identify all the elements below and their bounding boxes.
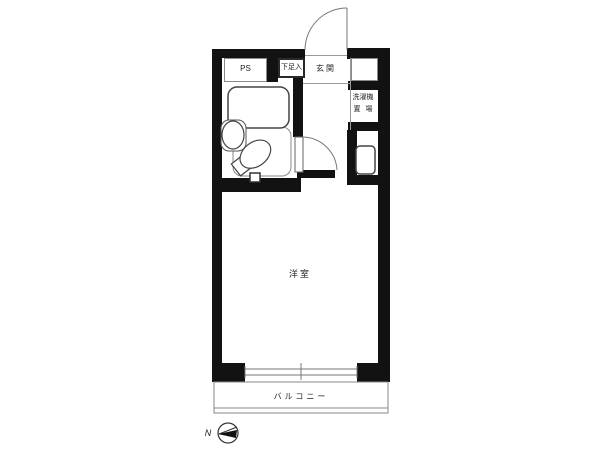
- main-room-label: 洋室: [270, 268, 330, 280]
- balcony-label: バルコニー: [216, 392, 386, 403]
- ps-label: PS: [224, 64, 267, 75]
- floor-plan: PS 下足入 玄関 洗濯機 置場 洋室 バルコニー N: [0, 0, 600, 450]
- laundry-label-line1: 洗濯機: [348, 93, 378, 102]
- compass-north-label: N: [202, 427, 214, 439]
- entrance-label: 玄関: [305, 64, 347, 75]
- laundry-label: 洗濯機 置場: [348, 93, 378, 115]
- washer-pan-icon: [356, 146, 375, 174]
- window-icon: [245, 363, 357, 380]
- sink-icon: [222, 121, 244, 149]
- laundry-label-line2: 置場: [348, 105, 378, 114]
- bath-door-step: [250, 173, 260, 182]
- entrance-door-arc: [305, 8, 347, 50]
- shoe-cabinet-label: 下足入: [278, 63, 305, 72]
- compass-icon: [218, 423, 238, 443]
- room-door-leaf: [295, 137, 303, 172]
- room-door-arc: [303, 137, 337, 170]
